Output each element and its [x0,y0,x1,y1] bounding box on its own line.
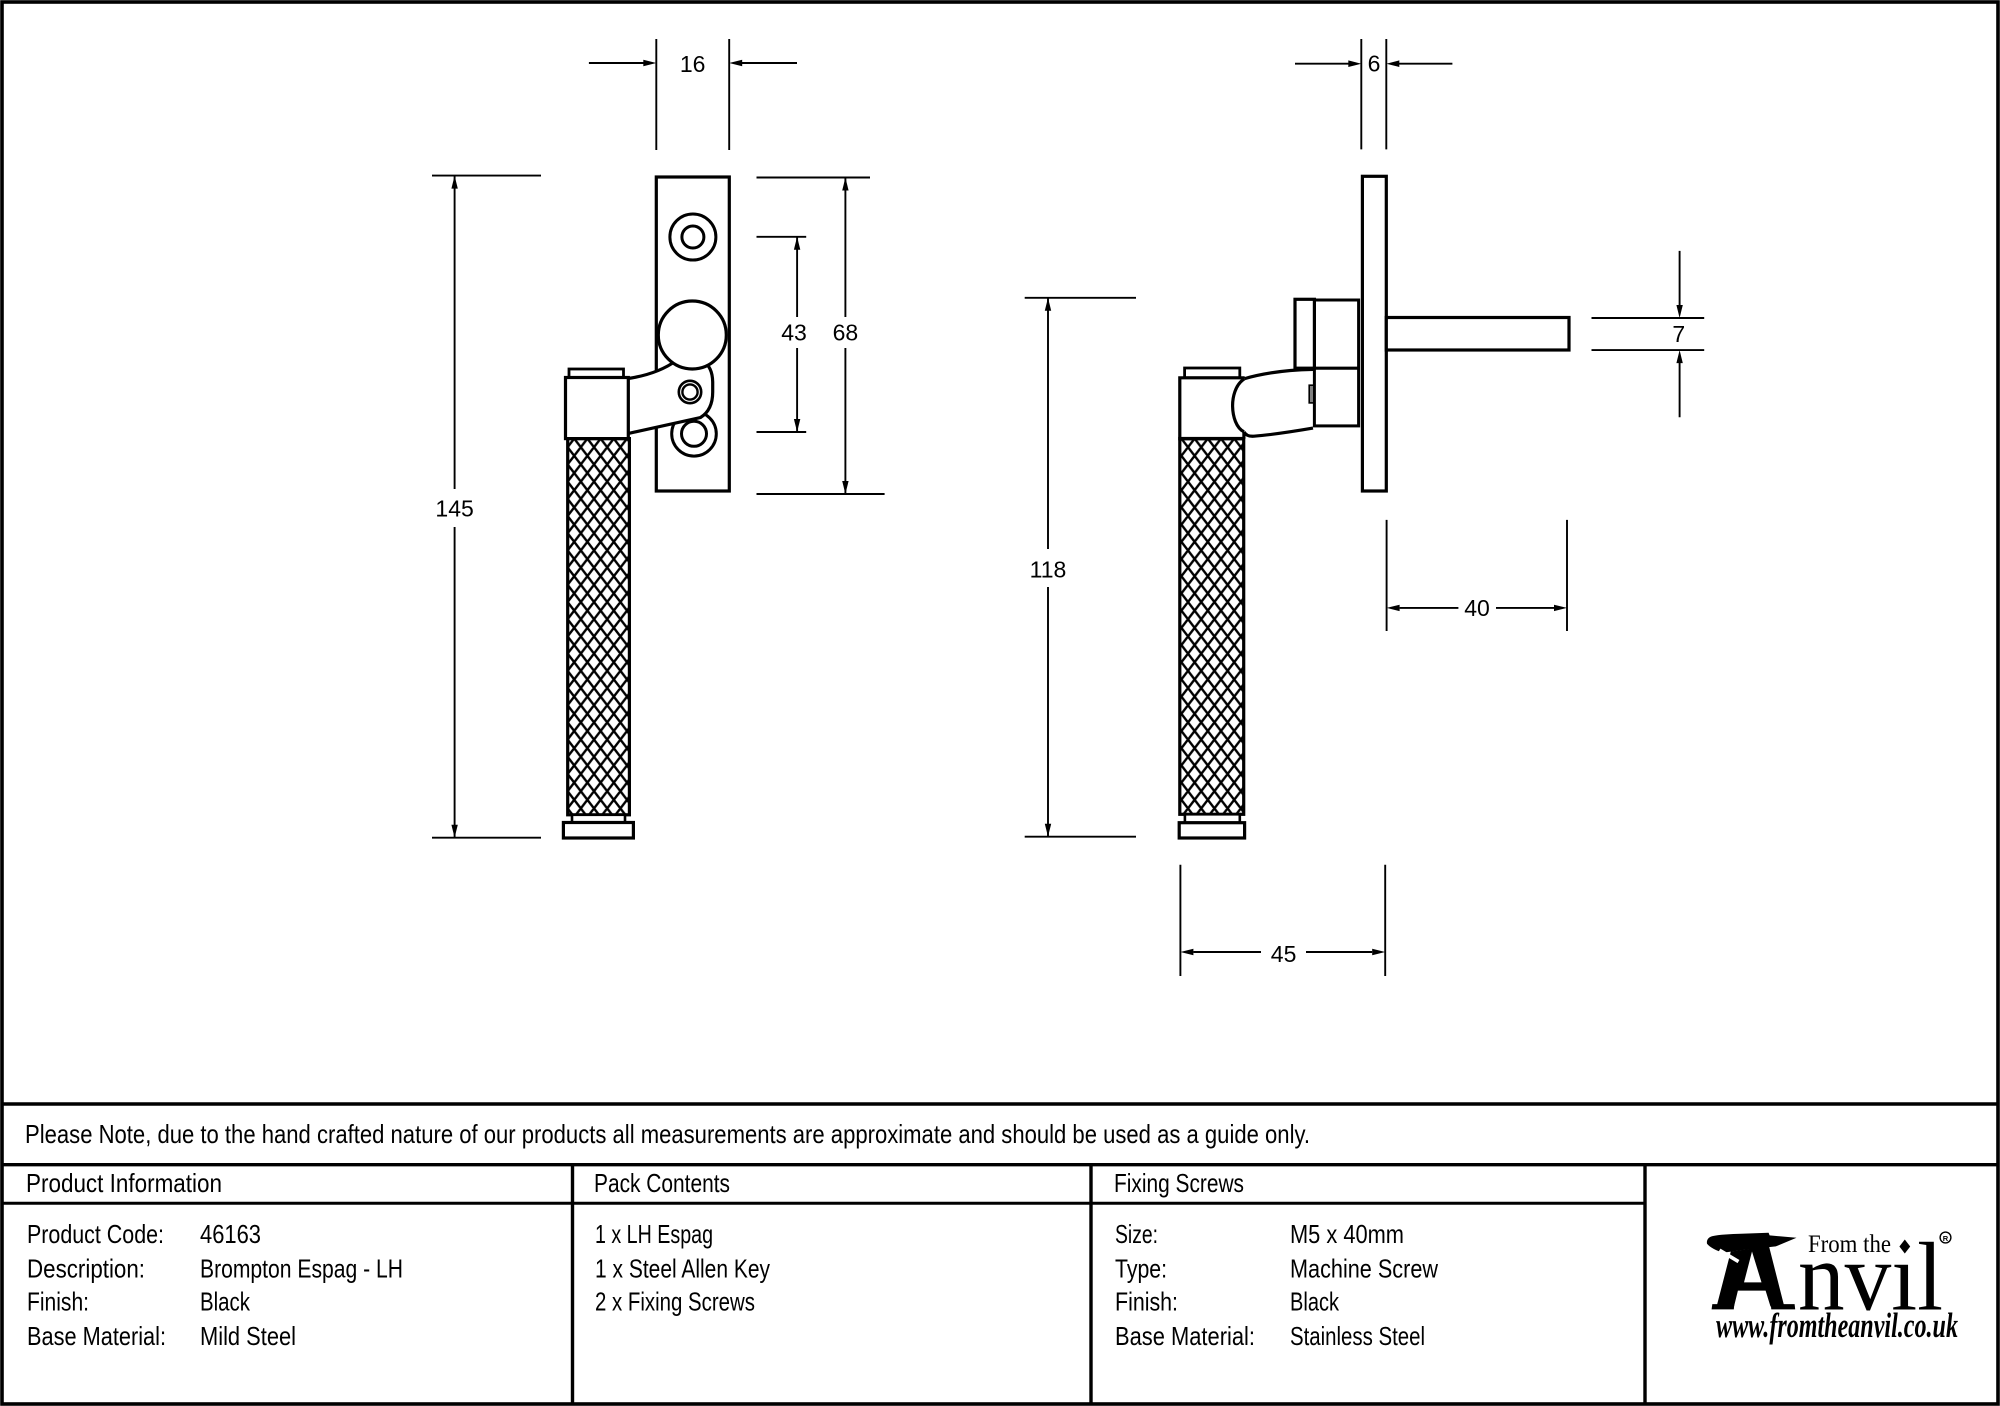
svg-text:7: 7 [1672,321,1685,347]
svg-text:Product Code:: Product Code: [27,1219,164,1249]
svg-text:145: 145 [435,496,473,522]
svg-text:45: 45 [1271,941,1297,967]
svg-text:Pack Contents: Pack Contents [594,1168,730,1198]
svg-text:Finish:: Finish: [1115,1287,1178,1317]
svg-text:Machine Screw: Machine Screw [1290,1254,1438,1284]
svg-text:Base Material:: Base Material: [27,1321,166,1351]
svg-text:118: 118 [1030,557,1067,583]
svg-text:Fixing Screws: Fixing Screws [1114,1168,1244,1198]
svg-text:Size:: Size: [1115,1219,1158,1249]
svg-text:1 x Steel Allen Key: 1 x Steel Allen Key [595,1254,770,1284]
svg-text:Base Material:: Base Material: [1115,1321,1255,1351]
svg-text:43: 43 [781,320,807,346]
svg-text:R: R [1943,1234,1949,1243]
svg-text:Brompton Espag - LH: Brompton Espag - LH [200,1254,403,1284]
svg-text:www.fromtheanvil.co.uk: www.fromtheanvil.co.uk [1716,1306,1958,1345]
svg-text:Black: Black [200,1287,251,1317]
svg-text:Black: Black [1290,1287,1340,1317]
svg-text:1 x LH Espag: 1 x LH Espag [595,1219,713,1249]
svg-text:Mild Steel: Mild Steel [200,1321,296,1351]
svg-text:Type:: Type: [1115,1254,1167,1284]
svg-text:Please Note, due to the hand c: Please Note, due to the hand crafted nat… [25,1119,1310,1149]
svg-text:From the: From the [1808,1231,1891,1258]
svg-text:46163: 46163 [200,1219,261,1249]
svg-text:M5 x 40mm: M5 x 40mm [1290,1219,1404,1249]
svg-text:40: 40 [1464,595,1490,621]
svg-text:Finish:: Finish: [27,1287,89,1317]
svg-text:Description:: Description: [27,1254,145,1284]
svg-text:2 x Fixing Screws: 2 x Fixing Screws [595,1287,755,1317]
svg-text:Stainless Steel: Stainless Steel [1290,1321,1425,1351]
svg-text:6: 6 [1368,51,1381,77]
svg-text:Product Information: Product Information [26,1168,222,1198]
svg-text:16: 16 [680,51,706,77]
svg-text:68: 68 [833,320,859,346]
